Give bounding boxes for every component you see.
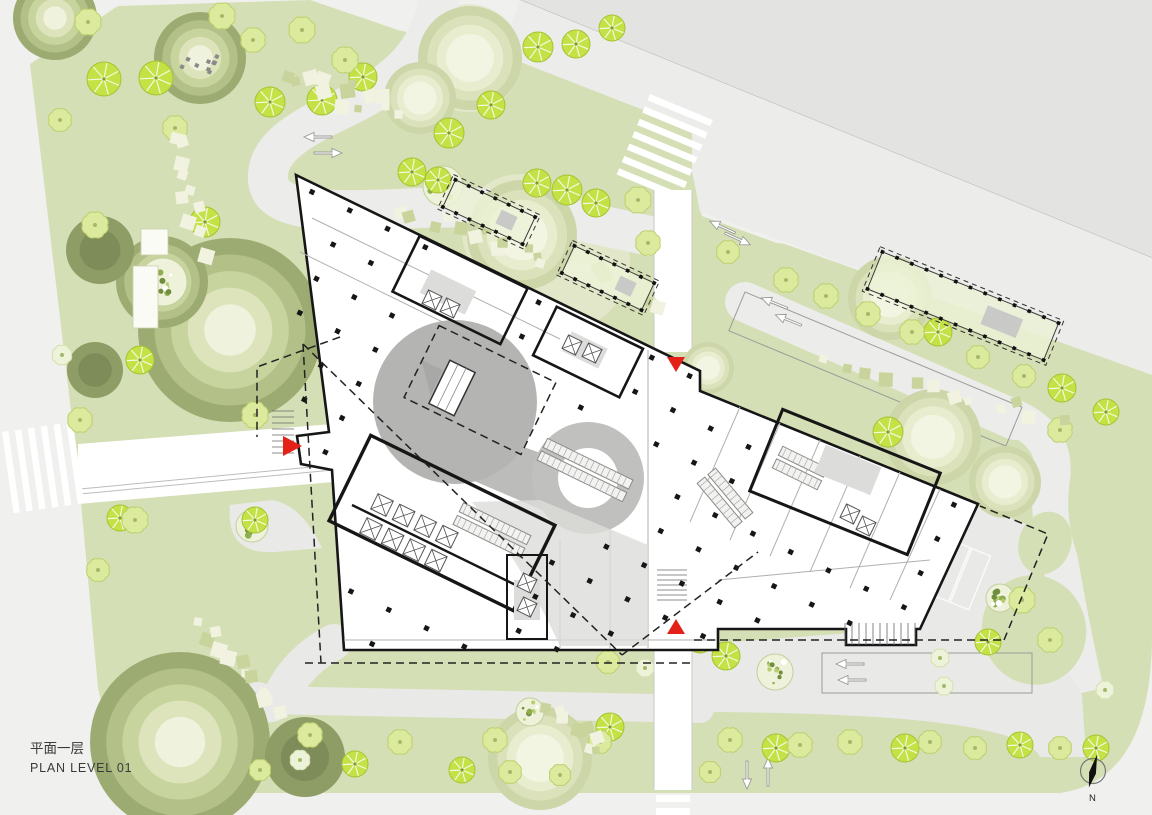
tree-rib bbox=[524, 47, 538, 48]
stepping-stone bbox=[556, 712, 568, 724]
stepping-stone bbox=[348, 79, 357, 88]
plan-title-en: PLAN LEVEL 01 bbox=[30, 761, 132, 775]
north-label: N bbox=[1089, 793, 1096, 804]
planter bbox=[133, 266, 158, 328]
shrub-center bbox=[86, 20, 90, 24]
stepping-stone bbox=[879, 372, 893, 386]
tree-rib bbox=[308, 100, 322, 101]
tree-rib bbox=[600, 28, 612, 29]
stepping-stone bbox=[454, 221, 469, 236]
shrub-center bbox=[343, 58, 347, 62]
stepping-stone bbox=[354, 105, 362, 113]
shrub-center bbox=[798, 743, 802, 747]
canopy-tree bbox=[155, 717, 205, 767]
bed-plant bbox=[245, 532, 252, 539]
bed-plant bbox=[770, 662, 775, 667]
tree-center bbox=[460, 768, 463, 771]
bed-plant bbox=[769, 660, 772, 663]
shrub-center bbox=[93, 223, 97, 227]
shrub-center bbox=[133, 518, 137, 522]
bed-plant bbox=[994, 588, 1000, 594]
shrub-center bbox=[1058, 428, 1062, 432]
shrub-center bbox=[173, 126, 177, 130]
stepping-stone bbox=[468, 229, 483, 244]
crosswalk-stripe bbox=[656, 795, 690, 802]
tree-center bbox=[154, 76, 157, 79]
tree-center bbox=[361, 75, 364, 78]
shrub-center bbox=[848, 740, 852, 744]
stepping-stone bbox=[996, 404, 1007, 415]
tree-center bbox=[608, 725, 611, 728]
bed-plant bbox=[166, 282, 169, 285]
shrub-center bbox=[708, 770, 712, 774]
shrub-center bbox=[96, 568, 100, 572]
tree-center bbox=[1018, 743, 1021, 746]
site-plan-drawing: 平面一层 PLAN LEVEL 01 N bbox=[0, 0, 1152, 815]
tree-center bbox=[886, 430, 889, 433]
bed-plant bbox=[166, 289, 172, 295]
shrub-center bbox=[308, 733, 312, 737]
shrub-center bbox=[300, 28, 304, 32]
tree-rib bbox=[140, 78, 156, 79]
bed-plant bbox=[777, 675, 781, 679]
bed-plant bbox=[523, 718, 526, 721]
shrub-center bbox=[220, 14, 224, 18]
stepping-stone bbox=[244, 670, 258, 684]
tree-rib bbox=[563, 44, 576, 45]
shrub-center bbox=[1022, 374, 1026, 378]
tree-rib bbox=[1084, 748, 1096, 749]
stepping-stone bbox=[497, 237, 507, 247]
stepping-stone bbox=[394, 110, 402, 118]
tree-center bbox=[410, 170, 413, 173]
stepping-stone bbox=[375, 89, 390, 104]
stepping-stone bbox=[592, 746, 600, 754]
shrub-center bbox=[298, 758, 302, 762]
tree-rib bbox=[108, 518, 120, 519]
shrub-center bbox=[726, 250, 730, 254]
tree-center bbox=[253, 518, 256, 521]
stepping-stone bbox=[193, 617, 202, 626]
shrub-center bbox=[824, 294, 828, 298]
bed-plant bbox=[159, 278, 165, 284]
tree-center bbox=[489, 103, 492, 106]
canopy-tree bbox=[43, 6, 67, 30]
tree-rib bbox=[524, 183, 537, 184]
tree-rib bbox=[1008, 745, 1020, 746]
central-road-north bbox=[654, 190, 692, 352]
shrub-center bbox=[784, 278, 788, 282]
tree-center bbox=[447, 131, 450, 134]
planter bbox=[141, 229, 168, 255]
tree-center bbox=[203, 220, 206, 223]
shrub-center bbox=[78, 418, 82, 422]
tree-rib bbox=[450, 770, 462, 771]
shrub-center bbox=[251, 38, 255, 42]
tree-center bbox=[574, 42, 577, 45]
tree-rib bbox=[350, 77, 363, 78]
crosswalk-stripe bbox=[656, 808, 690, 815]
shrub-center bbox=[493, 738, 497, 742]
tree-center bbox=[936, 330, 939, 333]
stepping-stone bbox=[858, 367, 871, 380]
tree-center bbox=[436, 178, 439, 181]
bed-plant bbox=[996, 600, 1002, 606]
tree-rib bbox=[1094, 412, 1106, 413]
plan-title-zh: 平面一层 bbox=[30, 741, 84, 756]
tree-center bbox=[1060, 386, 1063, 389]
shrub-center bbox=[976, 355, 980, 359]
bed-plant bbox=[781, 659, 787, 665]
stepping-stone bbox=[842, 364, 852, 374]
tree-rib bbox=[88, 79, 104, 80]
tree-center bbox=[102, 77, 105, 80]
tree-rib bbox=[399, 172, 412, 173]
stepping-stone bbox=[429, 221, 441, 233]
canopy-tree bbox=[204, 304, 256, 356]
stepping-stone bbox=[263, 696, 273, 706]
tree-center bbox=[774, 746, 777, 749]
tree-rib bbox=[976, 642, 988, 643]
canopy-tree bbox=[988, 465, 1021, 498]
bed-plant bbox=[767, 667, 771, 671]
tree-rib bbox=[583, 203, 596, 204]
tree-rib bbox=[925, 332, 938, 333]
tree-center bbox=[594, 201, 597, 204]
stepping-stone bbox=[927, 380, 940, 393]
tree-rib bbox=[892, 748, 905, 749]
shrub-center bbox=[928, 740, 932, 744]
tree-rib bbox=[343, 764, 355, 765]
stepping-stone bbox=[210, 626, 222, 638]
stepping-stone bbox=[912, 377, 924, 389]
shrub-center bbox=[910, 330, 914, 334]
bed-plant bbox=[991, 602, 995, 606]
tree-rib bbox=[435, 133, 449, 134]
bed-plant bbox=[522, 707, 525, 710]
shrub-center bbox=[58, 118, 62, 122]
shrub-center bbox=[942, 684, 946, 688]
tree-center bbox=[535, 181, 538, 184]
stepping-stone bbox=[442, 211, 453, 222]
shrub-center bbox=[60, 353, 64, 357]
stepping-stone bbox=[273, 705, 288, 720]
tree-center bbox=[610, 26, 613, 29]
tree-rib bbox=[478, 105, 491, 106]
tree-center bbox=[138, 358, 141, 361]
bed-plant bbox=[170, 274, 173, 277]
tree-rib bbox=[256, 102, 270, 103]
tree-center bbox=[724, 654, 727, 657]
shrub-center bbox=[508, 770, 512, 774]
canopy-tree bbox=[446, 34, 494, 82]
evergreen-tree bbox=[78, 353, 112, 387]
shrub-center bbox=[973, 746, 977, 750]
tree-rib bbox=[243, 520, 255, 521]
tree-rib bbox=[426, 180, 438, 181]
stepping-stone bbox=[539, 702, 551, 714]
stepping-stone bbox=[1060, 415, 1071, 426]
tree-center bbox=[986, 640, 989, 643]
canopy-tree bbox=[911, 415, 955, 459]
shrub-center bbox=[646, 241, 650, 245]
south-walk bbox=[265, 700, 700, 709]
tree-center bbox=[353, 762, 356, 765]
tree-center bbox=[903, 746, 906, 749]
canopy-tree bbox=[187, 45, 213, 71]
tree-rib bbox=[597, 727, 610, 728]
bed-plant bbox=[779, 671, 783, 675]
shrub-center bbox=[558, 773, 562, 777]
shrub-center bbox=[728, 738, 732, 742]
tree-rib bbox=[1049, 388, 1062, 389]
canopy-tree bbox=[403, 81, 436, 114]
shrub-center bbox=[1048, 638, 1052, 642]
shrub-center bbox=[1103, 688, 1107, 692]
shrub-center bbox=[938, 656, 942, 660]
shrub-center bbox=[866, 312, 870, 316]
tree-center bbox=[565, 188, 568, 191]
shrub-center bbox=[1058, 746, 1062, 750]
shrub-center bbox=[643, 666, 647, 670]
bed-plant bbox=[772, 682, 774, 684]
shrub-center bbox=[398, 740, 402, 744]
stepping-stone bbox=[175, 191, 189, 205]
tree-rib bbox=[713, 656, 726, 657]
tree-rib bbox=[553, 190, 567, 191]
tree-rib bbox=[127, 360, 140, 361]
tree-center bbox=[1094, 746, 1097, 749]
shrub-center bbox=[258, 768, 262, 772]
tree-rib bbox=[874, 432, 888, 433]
tree-center bbox=[118, 516, 121, 519]
bed-plant bbox=[774, 668, 778, 672]
shrub-center bbox=[636, 198, 640, 202]
tree-rib bbox=[763, 748, 776, 749]
bed-plant bbox=[527, 709, 533, 715]
site-plan-sheet: 平面一层 PLAN LEVEL 01 N bbox=[0, 0, 1152, 815]
tree-center bbox=[268, 100, 271, 103]
central-road-south bbox=[654, 650, 692, 790]
stepping-stone bbox=[334, 99, 350, 115]
tree-center bbox=[1104, 410, 1107, 413]
bed-plant bbox=[531, 700, 535, 704]
stepping-stone bbox=[1021, 409, 1037, 425]
tree-center bbox=[536, 45, 539, 48]
bed-plant bbox=[535, 705, 538, 708]
